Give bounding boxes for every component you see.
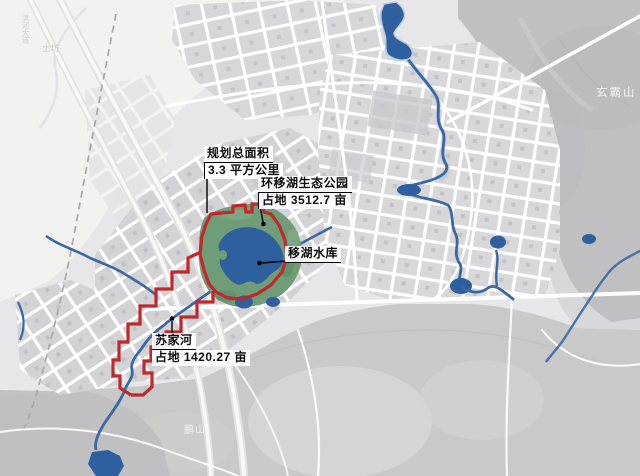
label-area-top-left: 土坊 (42, 42, 59, 54)
pond-se-lake (266, 297, 280, 307)
callout-planning-area: 规划总面积 3.3 平方公里 (204, 146, 283, 179)
callout-sujia-river: 苏家河 占地 1420.27 亩 (152, 333, 250, 366)
label-mountain-top-right: 玄霸山 (596, 84, 637, 100)
planning-map: 规划总面积 3.3 平方公里 环移湖生态公园 占地 3512.7 亩 移湖水库 … (0, 0, 640, 476)
dot-eco-park (261, 222, 266, 227)
callout-planning-title: 规划总面积 (204, 146, 273, 163)
map-canvas (0, 0, 640, 476)
pond-right-edge (582, 234, 596, 244)
callout-eco-park: 环移湖生态公园 占地 3512.7 亩 (258, 176, 352, 209)
callout-sujia-title: 苏家河 (152, 333, 196, 350)
callout-sujia-value: 占地 1420.27 亩 (152, 350, 250, 366)
callout-eco-park-title: 环移湖生态公园 (258, 176, 352, 193)
callout-eco-park-value: 占地 3512.7 亩 (258, 193, 350, 209)
dot-sujia (170, 316, 175, 321)
dot-reservoir (257, 261, 262, 266)
callout-reservoir-title: 移湖水库 (285, 246, 341, 263)
river-pool-west (397, 184, 421, 196)
pond-small-east (490, 236, 506, 249)
pond-branch (496, 250, 497, 286)
label-road-top-left: 滨河大道 (20, 14, 31, 44)
callout-reservoir: 移湖水库 (285, 246, 341, 263)
label-hill-bottom-left: 鹏山 (184, 421, 206, 436)
